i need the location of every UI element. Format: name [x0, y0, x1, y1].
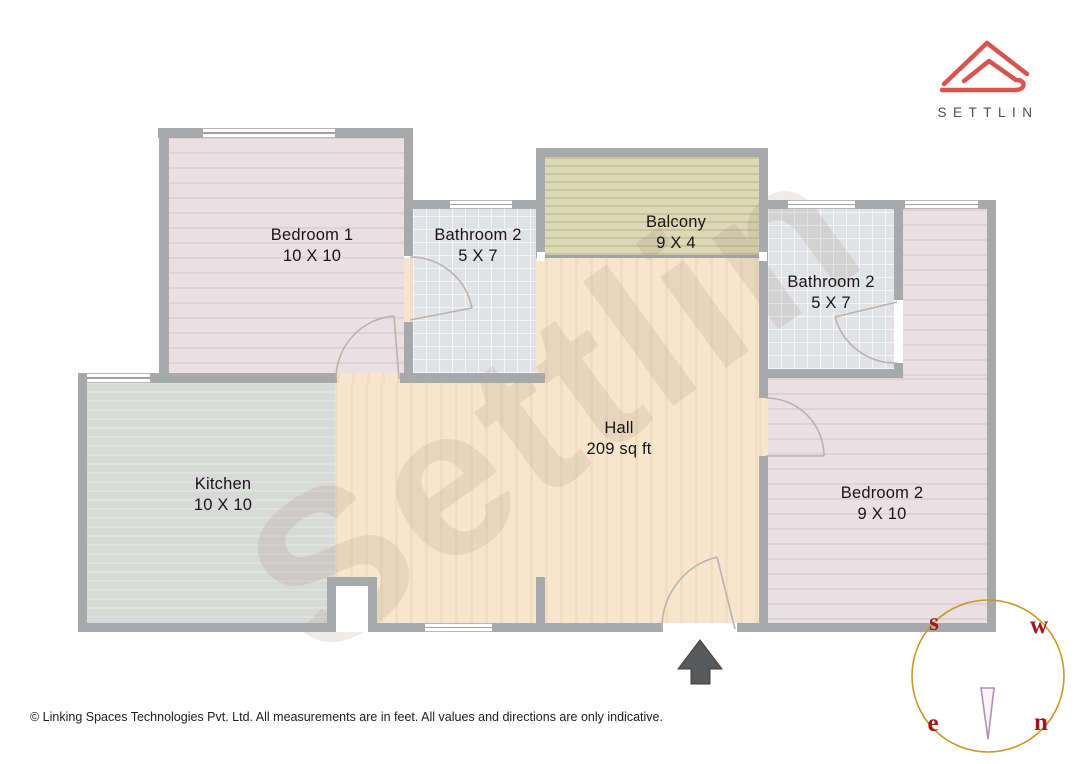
label-hall: Hall 209 sq ft: [529, 418, 709, 460]
room-dims: 9 X 4: [586, 233, 766, 254]
copyright-note: © Linking Spaces Technologies Pvt. Ltd. …: [30, 710, 663, 724]
room-dims: 10 X 10: [133, 495, 313, 516]
room-dims: 9 X 10: [792, 504, 972, 525]
wall: [368, 577, 377, 632]
label-bathroom-right: Bathroom 2 5 X 7: [756, 272, 906, 314]
room-dims: 209 sq ft: [529, 439, 709, 460]
compass-letter-e: e: [927, 710, 938, 737]
balcony-threshold: [545, 255, 759, 258]
settlin-logo-text: SETTLIN: [925, 105, 1045, 120]
door-threshold: [759, 398, 768, 456]
entrance-arrow-icon: [678, 640, 722, 684]
window: [905, 200, 978, 209]
window: [425, 623, 492, 632]
wall: [159, 128, 169, 373]
room-name: Hall: [529, 418, 709, 439]
wall: [78, 623, 335, 632]
room-name: Balcony: [586, 212, 766, 233]
label-bedroom2: Bedroom 2 9 X 10: [792, 483, 972, 525]
room-name: Bedroom 2: [792, 483, 972, 504]
compass-letter-w: w: [1030, 612, 1048, 639]
wall: [759, 456, 768, 632]
wall: [536, 577, 545, 623]
wall: [377, 623, 425, 632]
room-name: Bathroom 2: [756, 272, 906, 293]
recess: [336, 586, 368, 632]
window: [203, 128, 335, 138]
wall: [987, 200, 996, 632]
label-balcony: Balcony 9 X 4: [586, 212, 766, 254]
wall: [894, 363, 903, 375]
window: [85, 373, 150, 383]
wall: [855, 200, 905, 209]
compass-letter-s: s: [929, 609, 939, 636]
room-name: Bathroom 2: [408, 225, 548, 246]
compass-needle: [981, 688, 994, 739]
label-kitchen: Kitchen 10 X 10: [133, 474, 313, 516]
compass-letter-n: n: [1034, 709, 1048, 736]
label-bedroom1: Bedroom 1 10 X 10: [222, 225, 402, 267]
wall: [335, 128, 413, 138]
wall: [78, 373, 87, 632]
room-name: Bedroom 1: [222, 225, 402, 246]
room-dims: 10 X 10: [222, 246, 402, 267]
wall: [400, 373, 545, 383]
settlin-logo: SETTLIN: [925, 22, 1045, 117]
wall: [150, 373, 337, 383]
room-dims: 5 X 7: [756, 293, 906, 314]
door-threshold: [337, 373, 400, 383]
wall: [327, 577, 336, 632]
floor-plan-canvas: Settlin: [0, 0, 1080, 764]
wall: [492, 623, 663, 632]
room-dims: 5 X 7: [408, 246, 548, 267]
compass-rose: s w e n: [900, 585, 1080, 764]
label-bathroom-left: Bathroom 2 5 X 7: [408, 225, 548, 267]
wall: [404, 322, 413, 373]
wall: [759, 369, 903, 378]
room-bedroom2-floor-strip: [903, 209, 987, 378]
settlin-logo-icon: [930, 22, 1040, 98]
room-name: Kitchen: [133, 474, 313, 495]
window: [450, 200, 512, 209]
window: [788, 200, 855, 209]
wall: [536, 148, 768, 157]
